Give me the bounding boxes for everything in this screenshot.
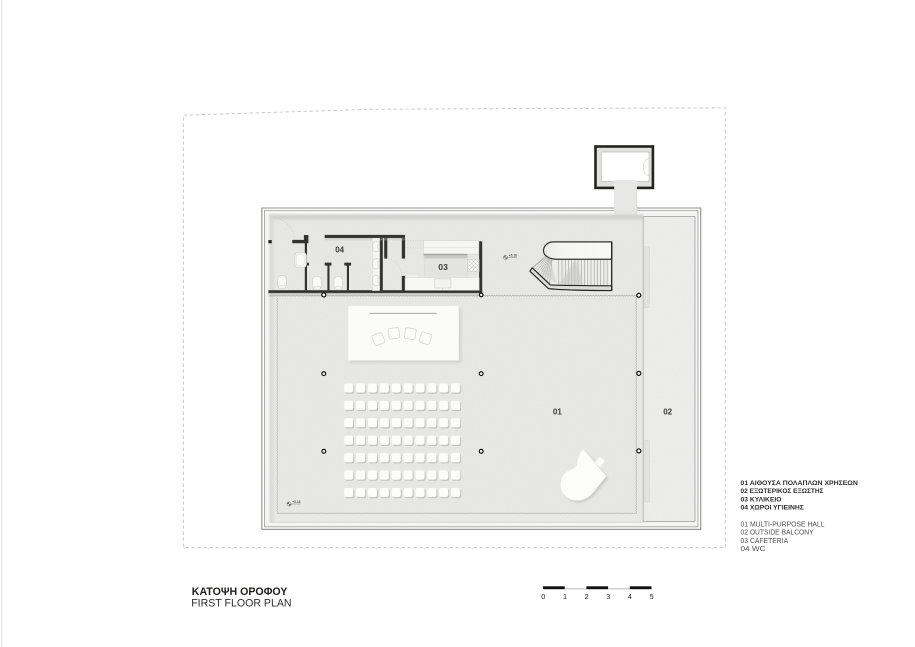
- svg-text:03 CAFETERIA: 03 CAFETERIA: [741, 538, 789, 545]
- svg-text:3: 3: [606, 592, 610, 601]
- svg-text:03: 03: [438, 262, 448, 272]
- svg-text:02 OUTSIDE BALCONY: 02 OUTSIDE BALCONY: [741, 530, 814, 537]
- svg-text:ΚΑΤΟΨΗ ΟΡΟΦΟΥ: ΚΑΤΟΨΗ ΟΡΟΦΟΥ: [192, 586, 288, 598]
- svg-text:01 MULTI-PURPOSE HALL: 01 MULTI-PURPOSE HALL: [741, 521, 825, 528]
- svg-text:01: 01: [553, 407, 562, 416]
- svg-text:01 ΑΙΘΟΥΣΑ ΠΟΛΑΠΛΩΝ ΧΡΗΣΕΩΝ: 01 ΑΙΘΟΥΣΑ ΠΟΛΑΠΛΩΝ ΧΡΗΣΕΩΝ: [741, 480, 858, 487]
- svg-text:02 ΕΞΩΤΕΡΙΚΟΣ ΕΞΩΣΤΗΣ: 02 ΕΞΩΤΕΡΙΚΟΣ ΕΞΩΣΤΗΣ: [741, 488, 824, 495]
- svg-text:2: 2: [585, 592, 589, 601]
- svg-text:5: 5: [650, 592, 654, 601]
- svg-text:03 ΚΥΛΙΚΕΙΟ: 03 ΚΥΛΙΚΕΙΟ: [741, 496, 782, 503]
- svg-text:FIRST FLOOR PLAN: FIRST FLOOR PLAN: [191, 598, 291, 610]
- svg-text:0: 0: [541, 592, 545, 601]
- svg-text:04 WC: 04 WC: [741, 546, 766, 553]
- svg-text:02: 02: [663, 407, 672, 416]
- svg-text:1: 1: [563, 592, 567, 601]
- svg-text:4: 4: [628, 592, 632, 601]
- svg-text:+5.16: +5.16: [509, 253, 517, 257]
- svg-text:04: 04: [335, 246, 344, 255]
- svg-text:+5.16: +5.16: [292, 500, 300, 504]
- svg-text:04 ΧΩΡΟΙ ΥΓΙΕΙΝΗΣ: 04 ΧΩΡΟΙ ΥΓΙΕΙΝΗΣ: [741, 505, 804, 512]
